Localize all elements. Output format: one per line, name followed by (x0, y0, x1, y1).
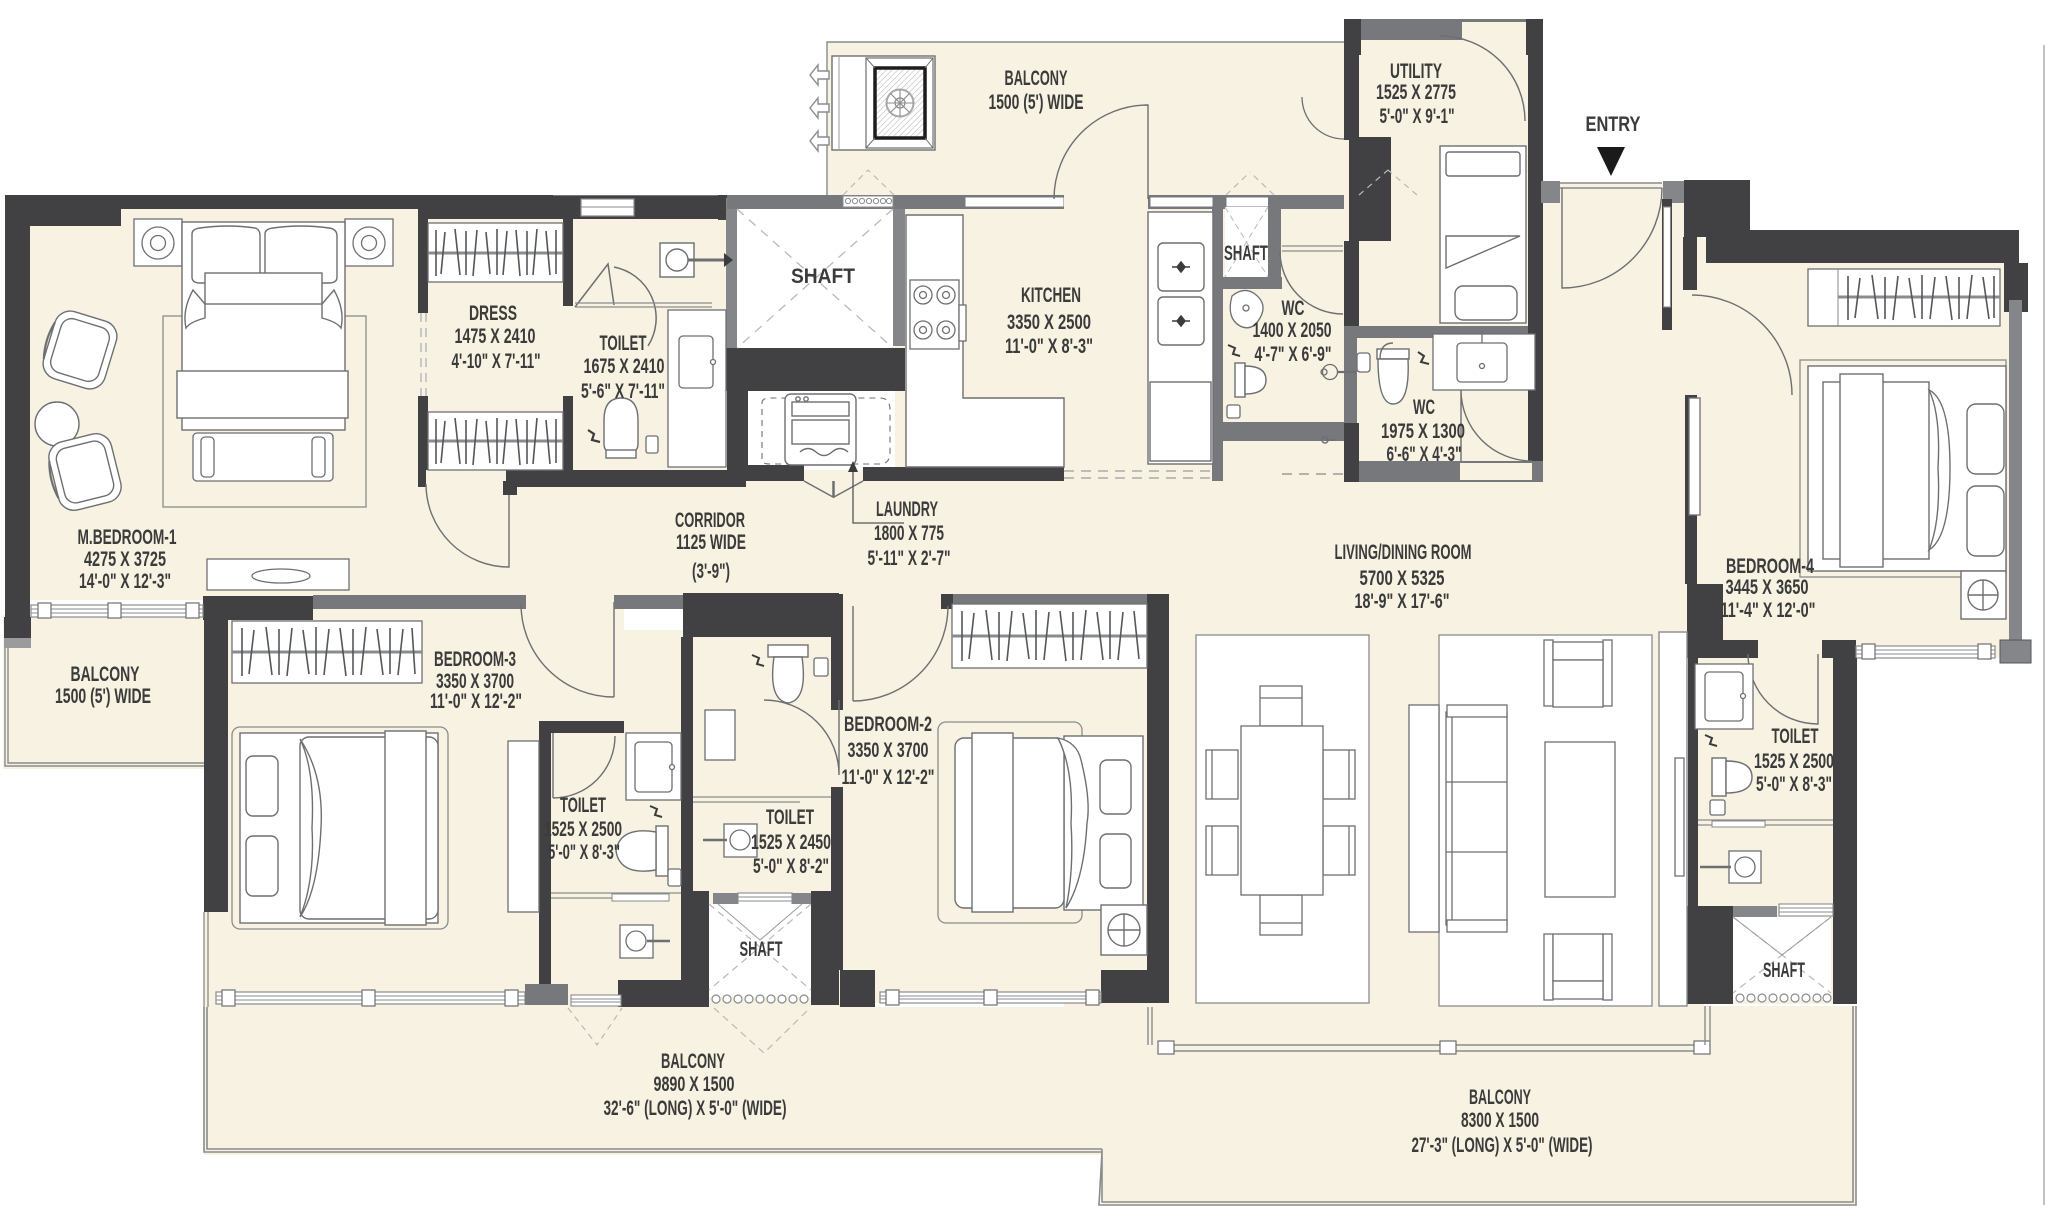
svg-text:1800 X 775: 1800 X 775 (874, 522, 944, 545)
svg-text:11'-0" X 12'-2": 11'-0" X 12'-2" (430, 690, 522, 713)
svg-text:ENTRY: ENTRY (1586, 113, 1641, 136)
svg-text:BEDROOM-3: BEDROOM-3 (434, 648, 516, 671)
svg-text:9890 X 1500: 9890 X 1500 (654, 1073, 735, 1096)
svg-text:5'-0" X 8'-3": 5'-0" X 8'-3" (548, 841, 620, 864)
svg-text:WC: WC (1413, 396, 1435, 419)
svg-text:WC: WC (1282, 297, 1305, 320)
svg-text:DRESS: DRESS (469, 302, 517, 325)
svg-text:UTILITY: UTILITY (1390, 60, 1442, 83)
svg-text:4'-7" X 6'-9": 4'-7" X 6'-9" (1255, 343, 1332, 366)
svg-text:1525 X 2775: 1525 X 2775 (1376, 81, 1456, 104)
svg-text:5'-11" X 2'-7": 5'-11" X 2'-7" (868, 547, 951, 570)
svg-text:BALCONY: BALCONY (71, 663, 140, 686)
svg-text:3445 X 3650: 3445 X 3650 (1726, 576, 1809, 599)
svg-text:5'-0" X 8'-3": 5'-0" X 8'-3" (1756, 773, 1832, 796)
svg-text:1500 (5') WIDE: 1500 (5') WIDE (989, 91, 1084, 114)
svg-text:BALCONY: BALCONY (1469, 1086, 1531, 1109)
svg-text:M.BEDROOM-1: M.BEDROOM-1 (78, 526, 177, 549)
svg-text:5'-0" X 8'-2": 5'-0" X 8'-2" (753, 855, 829, 878)
svg-text:11'-0" X 8'-3": 11'-0" X 8'-3" (1005, 335, 1093, 358)
svg-text:LAUNDRY: LAUNDRY (876, 498, 938, 521)
svg-text:5'-0" X 9'-1": 5'-0" X 9'-1" (1380, 105, 1455, 128)
svg-text:CORRIDOR: CORRIDOR (675, 509, 745, 532)
svg-text:SHAFT: SHAFT (740, 938, 783, 961)
svg-text:1525 X 2450: 1525 X 2450 (751, 831, 831, 854)
svg-text:SHAFT: SHAFT (1224, 242, 1268, 265)
svg-text:1975 X 1300: 1975 X 1300 (1381, 420, 1465, 443)
svg-text:4275 X 3725: 4275 X 3725 (84, 548, 166, 571)
svg-text:14'-0" X 12'-3": 14'-0" X 12'-3" (79, 570, 171, 593)
svg-text:1400 X 2050: 1400 X 2050 (1253, 319, 1332, 342)
svg-text:5700 X 5325: 5700 X 5325 (1360, 567, 1445, 590)
svg-text:1500 (5') WIDE: 1500 (5') WIDE (55, 685, 151, 708)
svg-text:1525 X 2500: 1525 X 2500 (544, 818, 622, 841)
svg-text:1675 X 2410: 1675 X 2410 (584, 355, 665, 378)
svg-text:18'-9" X 17'-6": 18'-9" X 17'-6" (1355, 590, 1450, 613)
svg-text:TOILET: TOILET (1772, 725, 1819, 748)
svg-text:6'-6" X 4'-3": 6'-6" X 4'-3" (1387, 443, 1462, 466)
svg-text:8300 X 1500: 8300 X 1500 (1461, 1109, 1539, 1132)
svg-text:TOILET: TOILET (600, 332, 647, 355)
svg-text:4'-10" X 7'-11": 4'-10" X 7'-11" (452, 350, 541, 373)
svg-text:1125 WIDE: 1125 WIDE (676, 531, 746, 554)
svg-text:BEDROOM-4: BEDROOM-4 (1726, 555, 1814, 578)
svg-text:3350 X 2500: 3350 X 2500 (1007, 311, 1091, 334)
svg-text:BALCONY: BALCONY (661, 1050, 725, 1073)
svg-text:3350 X 3700: 3350 X 3700 (848, 739, 929, 762)
svg-text:KITCHEN: KITCHEN (1021, 284, 1081, 307)
svg-text:SHAFT: SHAFT (1763, 959, 1805, 982)
svg-text:BALCONY: BALCONY (1005, 67, 1068, 90)
svg-text:BEDROOM-2: BEDROOM-2 (844, 713, 932, 736)
svg-text:TOILET: TOILET (560, 794, 606, 817)
svg-text:27'-3" (LONG) X 5'-0" (WIDE): 27'-3" (LONG) X 5'-0" (WIDE) (1412, 1134, 1593, 1157)
svg-text:1525 X 2500: 1525 X 2500 (1754, 750, 1834, 773)
svg-text:LIVING/DINING ROOM: LIVING/DINING ROOM (1335, 541, 1472, 564)
svg-text:1475 X 2410: 1475 X 2410 (455, 325, 536, 348)
svg-text:11'-0" X 12'-2": 11'-0" X 12'-2" (842, 766, 935, 789)
svg-text:32'-6" (LONG) X 5'-0" (WIDE): 32'-6" (LONG) X 5'-0" (WIDE) (604, 1097, 787, 1120)
svg-text:11'-4" X 12'-0": 11'-4" X 12'-0" (1721, 599, 1816, 622)
svg-text:(3'-9"): (3'-9") (692, 560, 730, 583)
svg-text:TOILET: TOILET (766, 806, 814, 829)
svg-text:SHAFT: SHAFT (791, 265, 855, 288)
svg-text:5'-6" X 7'-11": 5'-6" X 7'-11" (581, 380, 665, 403)
